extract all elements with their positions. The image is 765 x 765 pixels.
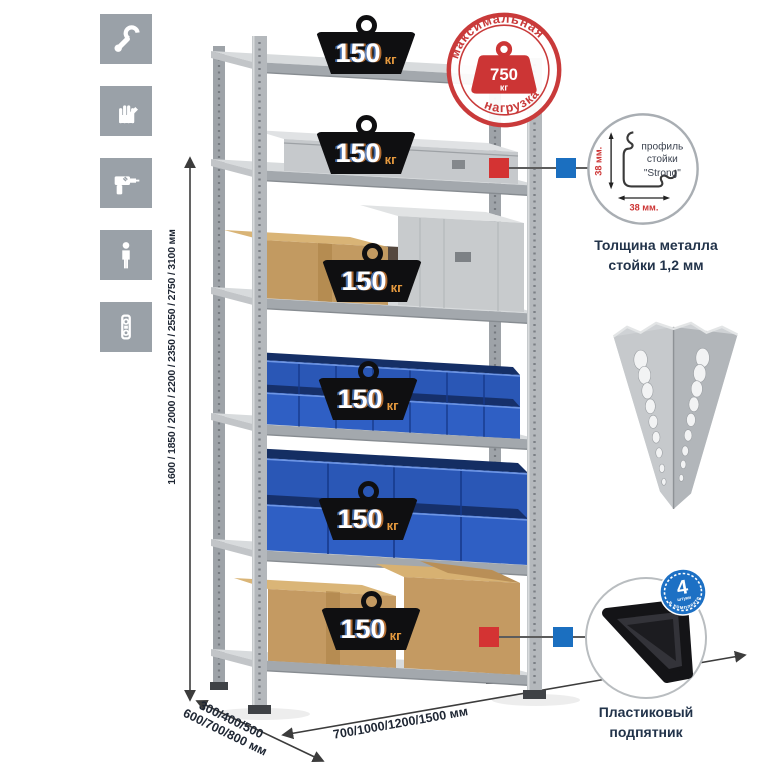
shelf-load-value: 150 <box>336 40 381 67</box>
max-load-stamp: максимальная нагрузка 750 кг <box>435 1 573 139</box>
profile-callout-red-marker <box>489 158 509 178</box>
svg-text:"Strong": "Strong" <box>644 168 681 179</box>
shelf-load-badge-5: 150кг <box>318 481 418 540</box>
perforated-post-image <box>598 298 753 533</box>
shelf-load-unit: кг <box>385 52 397 67</box>
shelf-load-badge-3: 150кг <box>322 243 422 302</box>
shelving-product-infographic: 1600 / 1850 / 2000 / 2200 / 2350 / 2550 … <box>0 0 765 765</box>
shelf-load-badge-4: 150кг <box>318 361 418 420</box>
stamp-load-value: 750 <box>490 65 518 84</box>
foot-callout-red-marker <box>479 627 499 647</box>
profile-dim-vertical: 38 мм. <box>593 147 603 176</box>
profile-label: профиль стойки "Strong" <box>641 141 683 179</box>
shelf-load-badge-6: 150кг <box>321 591 421 650</box>
post-profile-detail: 38 мм. 38 мм. профиль стойки "Strong" <box>585 111 701 227</box>
profile-caption: Толщина металла стойки 1,2 мм <box>566 236 746 275</box>
foot-caption: Пластиковый подпятник <box>556 703 736 742</box>
profile-callout-blue-marker <box>556 158 576 178</box>
included-count-badge: 4 штуки в комплекте <box>658 567 708 617</box>
shelf-load-badge-1: 150кг <box>316 15 416 74</box>
svg-text:стойки: стойки <box>647 154 678 165</box>
svg-text:профиль: профиль <box>641 141 683 153</box>
stamp-load-unit: кг <box>500 83 508 93</box>
profile-dim-horizontal: 38 мм. <box>630 203 659 213</box>
shelf-load-badge-2: 150кг <box>316 115 416 174</box>
foot-callout-blue-marker <box>553 627 573 647</box>
height-dimension-label: 1600 / 1850 / 2000 / 2200 / 2350 / 2550 … <box>166 229 178 484</box>
